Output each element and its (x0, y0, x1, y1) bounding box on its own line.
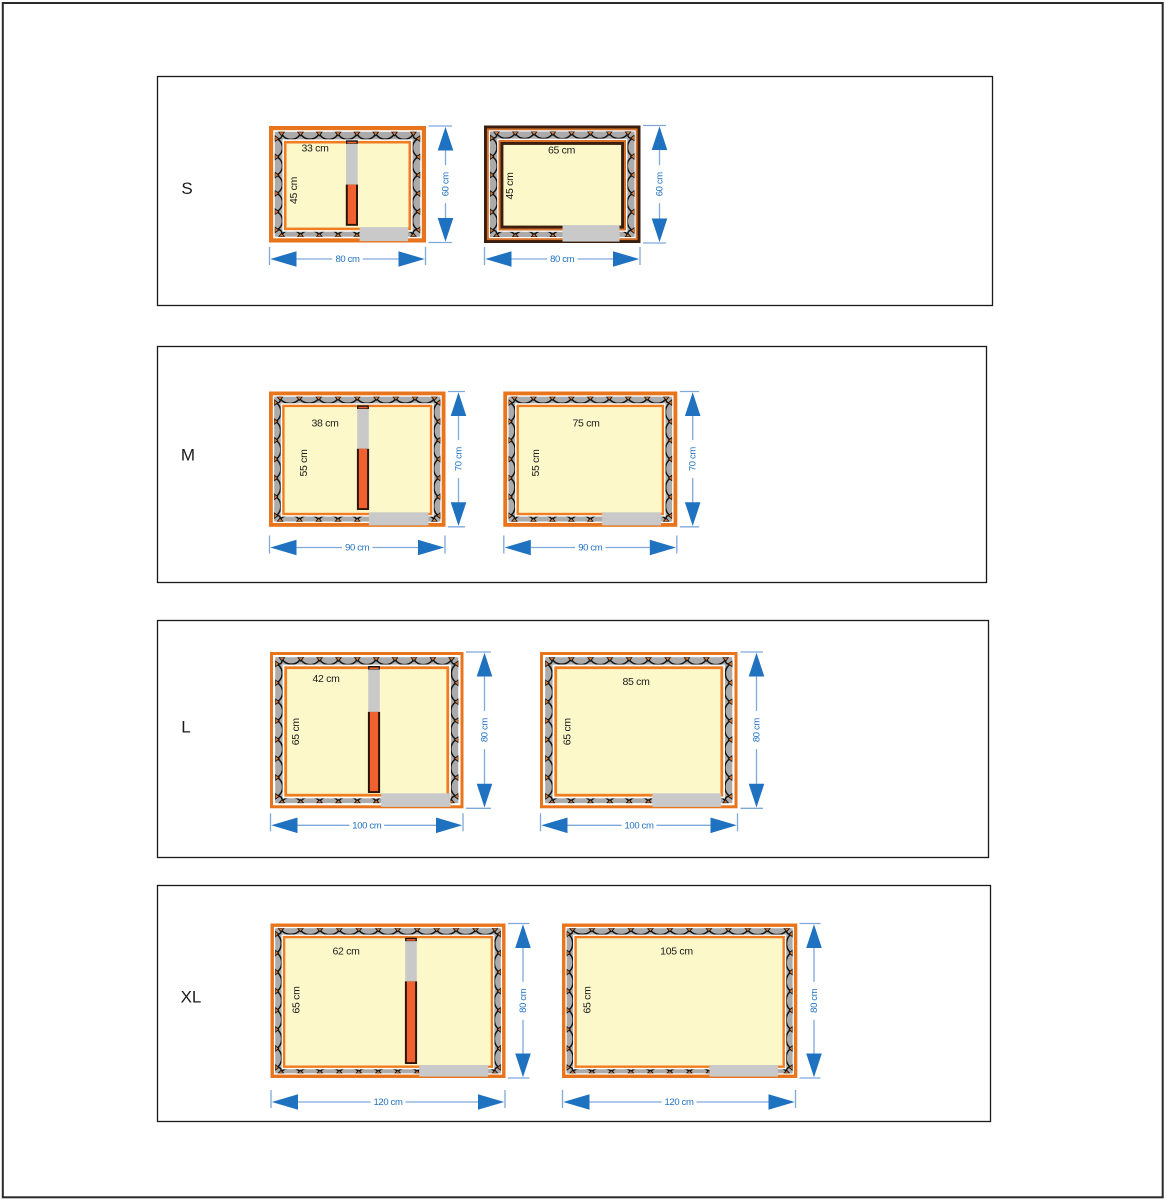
svg-text:45 cm: 45 cm (288, 176, 300, 204)
svg-text:65 cm: 65 cm (548, 145, 576, 157)
svg-text:45 cm: 45 cm (504, 172, 516, 200)
svg-text:100 cm: 100 cm (624, 820, 653, 831)
svg-text:L: L (181, 718, 190, 737)
svg-text:80 cm: 80 cm (335, 254, 360, 265)
svg-text:65 cm: 65 cm (581, 986, 593, 1014)
svg-text:120 cm: 120 cm (664, 1097, 693, 1108)
svg-text:65 cm: 65 cm (291, 986, 303, 1014)
svg-text:62 cm: 62 cm (332, 945, 360, 957)
svg-text:100 cm: 100 cm (352, 820, 381, 831)
svg-text:55 cm: 55 cm (298, 449, 310, 477)
svg-text:42 cm: 42 cm (312, 673, 340, 685)
svg-text:60 cm: 60 cm (441, 172, 452, 197)
svg-text:80 cm: 80 cm (480, 718, 491, 743)
svg-text:80 cm: 80 cm (752, 718, 763, 743)
svg-text:60 cm: 60 cm (655, 172, 666, 197)
svg-text:65 cm: 65 cm (290, 718, 302, 746)
svg-text:80 cm: 80 cm (550, 254, 575, 265)
svg-text:65 cm: 65 cm (562, 718, 574, 746)
svg-text:90 cm: 90 cm (345, 543, 370, 554)
svg-text:70 cm: 70 cm (688, 447, 699, 472)
svg-text:120 cm: 120 cm (373, 1097, 402, 1108)
svg-text:55 cm: 55 cm (530, 449, 542, 477)
svg-text:105 cm: 105 cm (660, 945, 693, 957)
svg-text:M: M (181, 446, 195, 465)
svg-text:70 cm: 70 cm (454, 447, 465, 472)
svg-text:75 cm: 75 cm (572, 417, 600, 429)
svg-text:90 cm: 90 cm (578, 543, 603, 554)
svg-text:80 cm: 80 cm (809, 988, 820, 1013)
svg-text:80 cm: 80 cm (518, 988, 529, 1013)
svg-text:33 cm: 33 cm (301, 143, 329, 155)
svg-text:38 cm: 38 cm (311, 417, 339, 429)
svg-text:S: S (181, 179, 192, 198)
svg-text:85 cm: 85 cm (622, 676, 650, 688)
svg-text:XL: XL (181, 988, 202, 1007)
